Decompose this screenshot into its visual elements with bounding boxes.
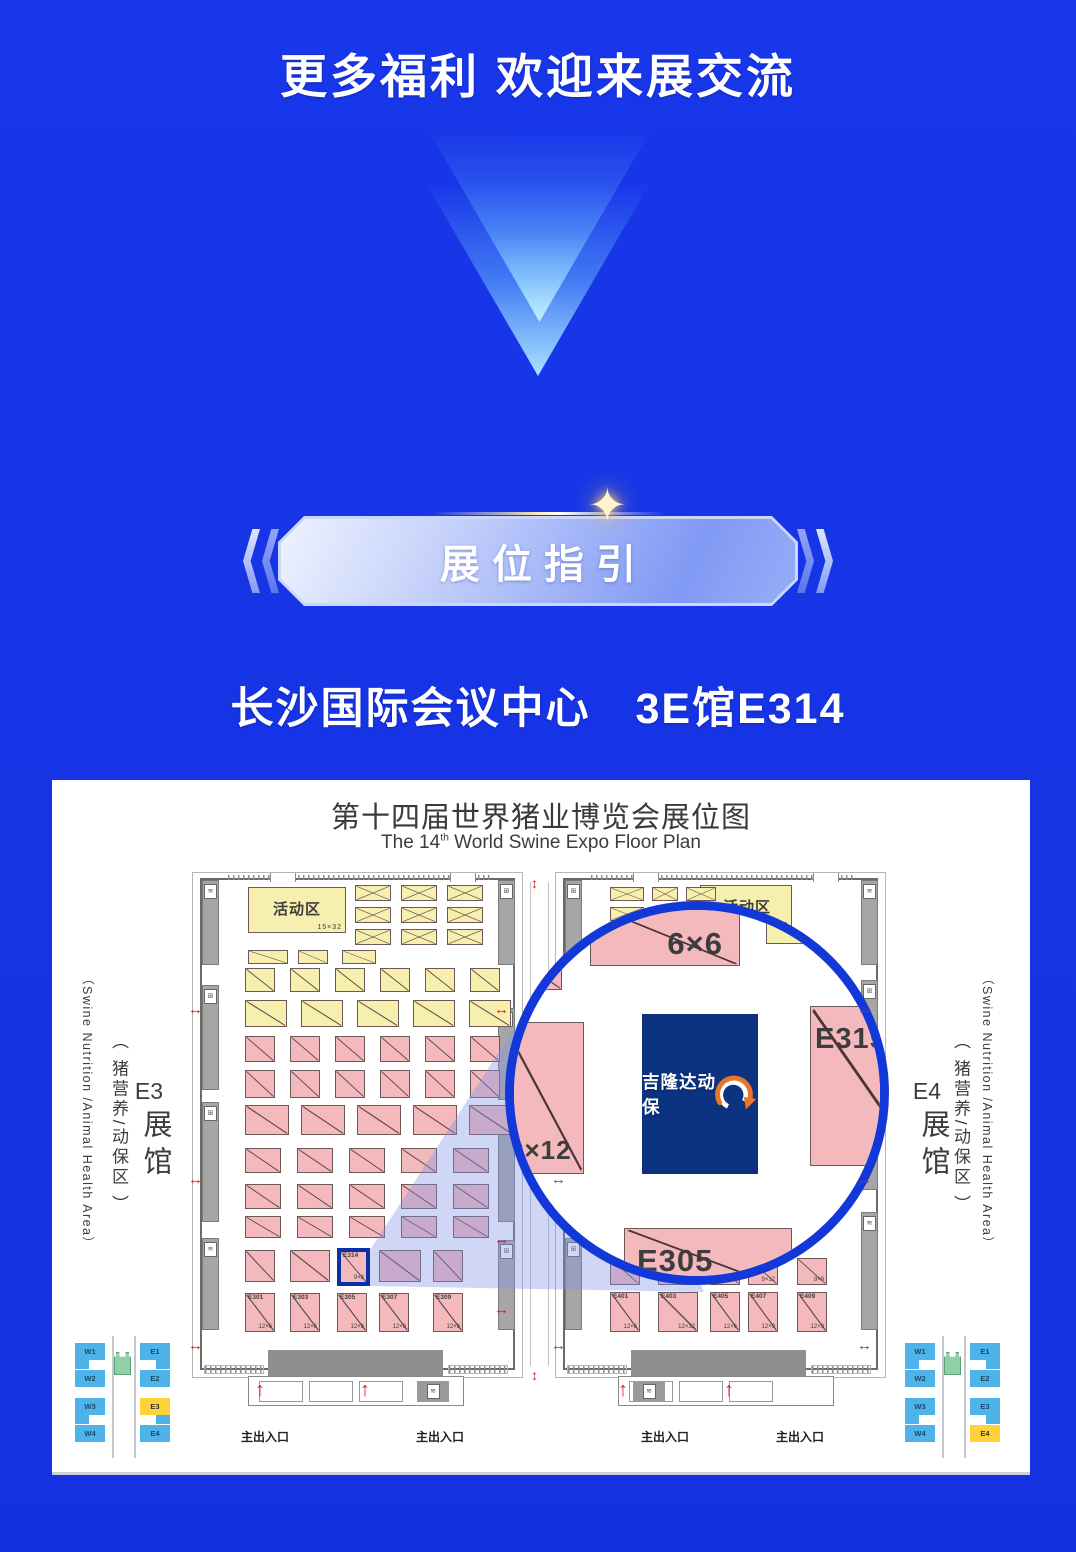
minimap-box-w3: W3 [75, 1398, 105, 1415]
booth [245, 1250, 275, 1282]
direction-arrow-icon: ↔ [494, 1302, 509, 1317]
booth-size: 12×12 [678, 1324, 695, 1331]
booth [301, 1000, 343, 1027]
booth-size: 12×6 [303, 1324, 317, 1331]
hall-e3-zone: （ 猪营养/动保区 ） [106, 1032, 131, 1282]
minimap-connector [905, 1360, 919, 1369]
booth [453, 1148, 489, 1173]
booth-e405: E40512×6 [710, 1292, 740, 1332]
direction-arrow-icon: ↔ [857, 1338, 872, 1353]
entrance-label: 主出入口 [416, 1428, 464, 1445]
booth-code: E309 [436, 1295, 451, 1302]
lobby-cell [679, 1381, 723, 1402]
booth-e401: E40112×6 [610, 1292, 640, 1332]
booth [425, 968, 455, 992]
booth [290, 968, 320, 992]
booth-code: E405 [713, 1294, 728, 1301]
booth [245, 1036, 275, 1062]
brand-lockup: 吉隆达动保 [642, 1014, 758, 1174]
booth [401, 1184, 437, 1209]
booth [335, 1036, 365, 1062]
booth-e315: E315 [810, 1006, 889, 1166]
minimap-connector [986, 1360, 1000, 1369]
booth-size: 9×6 [354, 1275, 364, 1282]
booth [355, 929, 391, 945]
entrance-label: 主出入口 [241, 1428, 289, 1445]
booth [652, 887, 678, 901]
booth [425, 1036, 455, 1062]
entrance-hatch [811, 1365, 871, 1374]
booth [301, 1105, 345, 1135]
minimap-box-w2: W2 [905, 1370, 935, 1387]
lobby-service-box: ≋ [633, 1381, 665, 1402]
booth [357, 1105, 401, 1135]
booth [357, 1000, 399, 1027]
booth-size: 12×6 [723, 1324, 737, 1331]
direction-arrow-icon: ↔ [551, 1172, 566, 1187]
booth-size: 12×6 [350, 1324, 364, 1331]
direction-arrow-icon: ↑ [724, 1380, 734, 1400]
sparkle-icon: ✦ [588, 482, 627, 528]
magnifier-circle: 活动区6×6E3159×12E305吉隆达动保 [505, 901, 889, 1285]
facility-block: ⊞ [565, 1238, 582, 1330]
booth [401, 885, 437, 901]
magnifier-booth-label: 9×12 [509, 1137, 572, 1163]
booth [453, 1184, 489, 1209]
booth [245, 1070, 275, 1098]
booth-code: E409 [800, 1294, 815, 1301]
direction-arrow-icon: ↔ [494, 1002, 509, 1017]
direction-arrow-icon: ↑ [618, 1380, 628, 1400]
booth [470, 968, 500, 992]
magnifier-booth-label: E305 [637, 1245, 713, 1276]
facility-block: ≋ [202, 1238, 219, 1330]
booth-size: 12×6 [258, 1324, 272, 1331]
hall-e3-tag: E3 展馆 [132, 1078, 166, 1183]
booth [349, 1184, 385, 1209]
booth-e407: E40712×9 [748, 1292, 778, 1332]
facility-icon: ⊞ [500, 884, 513, 899]
activity-area-size: 15×32 [317, 924, 342, 931]
facility-icon: ⊞ [204, 1106, 217, 1121]
badge-panel: 展位指引 [278, 516, 798, 606]
bracket-decor-icon [816, 529, 833, 593]
minimap-connector [986, 1415, 1000, 1424]
facility-block: ⊞ [202, 985, 219, 1090]
booth [297, 1148, 333, 1173]
lobby-cell [309, 1381, 353, 1402]
booth [349, 1216, 385, 1238]
badge-label: 展位指引 [428, 532, 648, 590]
booth [290, 1036, 320, 1062]
booth-code: E301 [248, 1295, 263, 1302]
booth [610, 887, 644, 901]
light-streak-icon [432, 512, 664, 515]
facility-icon: ≋ [204, 884, 217, 899]
bracket-decor-icon [262, 529, 279, 593]
door-gap [813, 873, 839, 882]
booth-size: 12×9 [761, 1324, 775, 1331]
booth [447, 885, 483, 901]
minimap-road [964, 1336, 966, 1458]
floorplan-card: 第十四届世界猪业博览会展位图 The 14th World Swine Expo… [52, 780, 1030, 1475]
booth-size: 9×12 [761, 1277, 775, 1284]
booth [447, 907, 483, 923]
page-title: 更多福利 欢迎来展交流 [0, 38, 1076, 107]
booth-e409: E40912×9 [797, 1292, 827, 1332]
booth [245, 1105, 289, 1135]
magnifier-booth-label: 6×6 [667, 928, 723, 959]
direction-arrow-icon: ↑ [360, 1380, 370, 1400]
hall-e4-tag: E4 展馆 [910, 1078, 944, 1183]
booth-e301: E30112×6 [245, 1293, 275, 1332]
minimap-box-w1: W1 [905, 1343, 935, 1360]
bracket-decor-icon [243, 529, 260, 593]
booth-e307: E30712×6 [379, 1293, 409, 1332]
booth [425, 1070, 455, 1098]
magnifier-booth-label: E315 [815, 1025, 887, 1054]
booth-size: 12×6 [392, 1324, 406, 1331]
direction-arrow-icon: ↔ [494, 1232, 509, 1247]
venue-line: 长沙国际会议中心 3E馆E314 [0, 674, 1076, 736]
facility-icon: ⊞ [567, 884, 580, 899]
booth [401, 1216, 437, 1238]
booth [342, 950, 376, 964]
lobby-cell [259, 1381, 303, 1402]
direction-arrow-icon: ↔ [188, 1338, 203, 1353]
booth-code: E401 [613, 1294, 628, 1301]
booth [401, 929, 437, 945]
facility-icon: ≋ [863, 884, 876, 899]
minimap-box-e2: E2 [970, 1370, 1000, 1387]
minimap-connector [156, 1360, 170, 1369]
lobby-service-box: ≋ [417, 1381, 449, 1402]
booth [470, 1070, 500, 1098]
booth [401, 1148, 437, 1173]
booth [298, 950, 328, 964]
booth-e403: E40312×12 [658, 1292, 698, 1332]
booth [453, 1216, 489, 1238]
booth [245, 1184, 281, 1209]
booth [349, 1148, 385, 1173]
booth [297, 1184, 333, 1209]
promo-page: 更多福利 欢迎来展交流 展位指引 ✦ 长沙国际会议中心 3E馆E314 第十四届… [0, 0, 1076, 1552]
booth [245, 1148, 281, 1173]
minimap-road [134, 1336, 136, 1458]
entrance-hatch [448, 1365, 508, 1374]
booth [245, 968, 275, 992]
booth [245, 1216, 281, 1238]
direction-arrow-icon: ↔ [188, 1172, 203, 1187]
booth [470, 1036, 500, 1062]
direction-arrow-icon: ↔ [188, 1002, 203, 1017]
facility-block [866, 906, 881, 998]
minimap-box-w1: W1 [75, 1343, 105, 1360]
booth [245, 1000, 287, 1027]
facility-icon: ⊞ [204, 989, 217, 1004]
booth-e309: E30912×6 [433, 1293, 463, 1332]
booth-size: 12×6 [446, 1324, 460, 1331]
entrance-hatch [204, 1365, 264, 1374]
brand-name: 吉隆达动保 [642, 1069, 722, 1119]
booth [380, 968, 410, 992]
booth [413, 1105, 457, 1135]
lobby-cell [729, 1381, 773, 1402]
booth [335, 1070, 365, 1098]
door-gap [270, 873, 296, 882]
direction-arrow-icon: ↔ [551, 1338, 566, 1353]
activity-area-label: 活动区 [273, 902, 321, 917]
facility-icon: ≋ [427, 1384, 440, 1399]
minimap-road [942, 1336, 944, 1458]
booth [686, 887, 716, 901]
minimap-box-w2: W2 [75, 1370, 105, 1387]
minimap-box-e4: E4 [140, 1425, 170, 1442]
booth-9x12: 9×12 [505, 1022, 584, 1174]
booth [335, 968, 365, 992]
booth-code: E314 [343, 1253, 358, 1260]
direction-arrow-icon: ↔ [857, 1172, 872, 1187]
minimap-box-w3: W3 [905, 1398, 935, 1415]
booth-6x6: 6×6 [590, 904, 740, 966]
minimap-box-e2: E2 [140, 1370, 170, 1387]
booth-code: E403 [661, 1294, 676, 1301]
booth-size: 12×6 [623, 1324, 637, 1331]
door-gap [450, 873, 476, 882]
booth-e314-highlight: E3149×6 [337, 1248, 370, 1286]
booth-code: E303 [293, 1295, 308, 1302]
facility-icon: ≋ [204, 1242, 217, 1257]
facility-block: ⊞ [498, 880, 515, 965]
minimap-hall-building [114, 1352, 131, 1375]
booth [413, 1000, 455, 1027]
minimap-hall-building [944, 1352, 961, 1375]
brand-booth: 吉隆达动保 [642, 1014, 758, 1174]
booth [380, 1036, 410, 1062]
bracket-decor-icon [797, 529, 814, 593]
booth [433, 1250, 463, 1282]
entrance-label: 主出入口 [776, 1428, 824, 1445]
hall-e4-zone-en: （Swine Nutrition /Animal Health Area） [978, 972, 997, 1322]
booth [401, 907, 437, 923]
booth [355, 885, 391, 901]
booth-code: E305 [340, 1295, 355, 1302]
facility-block: ≋ [202, 880, 219, 965]
minimap-connector [75, 1415, 89, 1424]
down-triangle-icon [426, 183, 650, 376]
minimap-box-w4: W4 [75, 1425, 105, 1442]
booth-size: 9×9 [814, 1277, 824, 1284]
booth [505, 948, 562, 990]
booth-e303: E30312×6 [290, 1293, 320, 1332]
direction-arrow-icon: ↔ [857, 1002, 872, 1017]
booth: 9×9 [797, 1258, 827, 1285]
direction-arrow-icon: ↕ [531, 876, 538, 890]
minimap-box-w4: W4 [905, 1425, 935, 1442]
booth [248, 950, 288, 964]
entrance-building [631, 1350, 806, 1376]
booth [290, 1070, 320, 1098]
minimap-box-e3: E3 [140, 1398, 170, 1415]
entrance-label: 主出入口 [641, 1428, 689, 1445]
minimap-box-e3: E3 [970, 1398, 1000, 1415]
minimap-box-e1: E1 [140, 1343, 170, 1360]
hall-e3-zone-en: （Swine Nutrition /Animal Health Area） [78, 972, 97, 1322]
booth [447, 929, 483, 945]
facility-block: ⊞ [202, 1102, 219, 1222]
facility-icon: ≋ [643, 1384, 656, 1399]
minimap-box-e1: E1 [970, 1343, 1000, 1360]
booth-code: E407 [751, 1294, 766, 1301]
booth [379, 1250, 421, 1282]
entrance-lobby: ≋ [248, 1376, 464, 1406]
activity-area-label: 活动区 [801, 919, 846, 933]
booth-e305: E30512×6 [337, 1293, 367, 1332]
entrance-hatch [567, 1365, 627, 1374]
door-gap [633, 873, 659, 882]
floorplan: （Swine Nutrition /Animal Health Area） （ … [52, 780, 1030, 1472]
activity-area: 活动区15×32 [248, 887, 346, 933]
direction-arrow-icon: ↑ [255, 1380, 265, 1400]
entrance-building [268, 1350, 443, 1376]
minimap-connector [156, 1415, 170, 1424]
minimap-box-e4: E4 [970, 1425, 1000, 1442]
minimap-connector [75, 1360, 89, 1369]
direction-arrow-icon: ↕ [531, 1368, 538, 1382]
minimap-road [112, 1336, 114, 1458]
booth [380, 1070, 410, 1098]
booth [297, 1216, 333, 1238]
booth-code: E307 [382, 1295, 397, 1302]
booth [355, 907, 391, 923]
booth [290, 1250, 330, 1282]
booth-size: 12×9 [810, 1324, 824, 1331]
minimap-connector [905, 1415, 919, 1424]
